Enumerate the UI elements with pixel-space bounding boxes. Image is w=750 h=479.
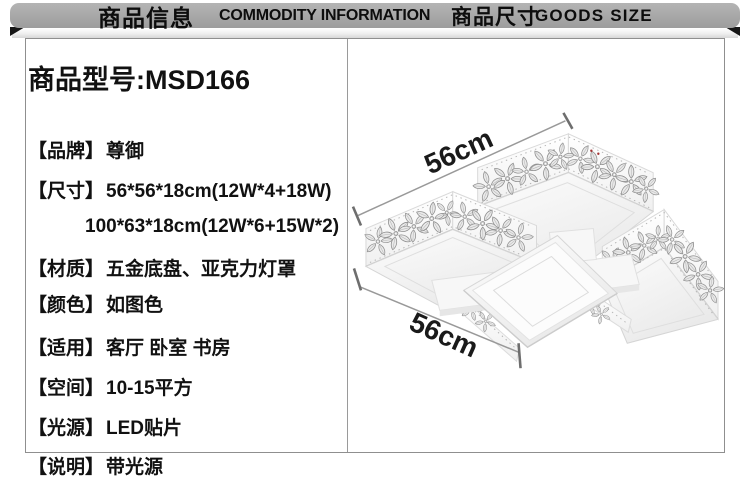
- spec-label: 【光源】: [28, 418, 104, 439]
- spec-label: 【空间】: [28, 378, 104, 399]
- spec-value: 客厅 卧室 书房: [106, 338, 231, 359]
- spec-value: 五金底盘、亚克力灯罩: [106, 259, 296, 280]
- product-size-diagram: 56cm 56cm: [348, 39, 724, 452]
- goods-size-title-en: GOODS SIZE: [535, 6, 653, 26]
- spec-label: 【品牌】: [28, 141, 104, 162]
- commodity-info-panel: 商品型号:MSD166 【品牌】尊御 【尺寸】56*56*18cm(12W*4+…: [26, 39, 348, 452]
- commodity-info-title-en: COMMODITY INFORMATION: [219, 7, 430, 25]
- spec-value: 尊御: [106, 141, 144, 162]
- spec-label: 【适用】: [28, 338, 104, 359]
- spec-value: 10-15平方: [106, 378, 193, 399]
- indicator-dot: [590, 150, 592, 152]
- content-box: 商品型号:MSD166 【品牌】尊御 【尺寸】56*56*18cm(12W*4+…: [25, 38, 725, 453]
- spec-label: 【说明】: [28, 457, 104, 478]
- spec-value: 56*56*18cm(12W*4+18W): [106, 181, 332, 202]
- spec-value: 带光源: [106, 457, 163, 478]
- spec-row-size-line2: 100*63*18cm(12W*6+15W*2): [85, 216, 339, 238]
- goods-size-panel: 56cm 56cm: [348, 39, 724, 452]
- commodity-info-title-zh: 商品信息: [98, 0, 194, 33]
- spec-value: LED贴片: [106, 418, 182, 439]
- spec-row-size: 【尺寸】56*56*18cm(12W*4+18W): [28, 176, 332, 203]
- spec-row-material: 【材质】五金底盘、亚克力灯罩: [28, 254, 296, 281]
- spec-row-color: 【颜色】如图色: [28, 290, 163, 317]
- spec-row-usage: 【适用】客厅 卧室 书房: [28, 333, 231, 360]
- spec-label: 【颜色】: [28, 295, 104, 316]
- indicator-dot: [597, 153, 599, 155]
- spec-label: 【材质】: [28, 259, 104, 280]
- goods-size-title-zh: 商品尺寸: [451, 1, 539, 31]
- spec-row-brand: 【品牌】尊御: [28, 136, 144, 163]
- spec-value: 如图色: [106, 295, 163, 316]
- spec-row-space: 【空间】10-15平方: [28, 373, 193, 400]
- spec-label: 【尺寸】: [28, 181, 104, 202]
- spec-row-note: 【说明】带光源: [28, 452, 163, 479]
- product-detail-page: { "header": { "left_zh": "商品信息", "left_e…: [0, 0, 750, 464]
- spec-row-lightsource: 【光源】LED贴片: [28, 413, 182, 440]
- header-bar: 商品信息 COMMODITY INFORMATION 商品尺寸 GOODS SI…: [10, 3, 740, 28]
- product-model-title: 商品型号:MSD166: [28, 58, 250, 97]
